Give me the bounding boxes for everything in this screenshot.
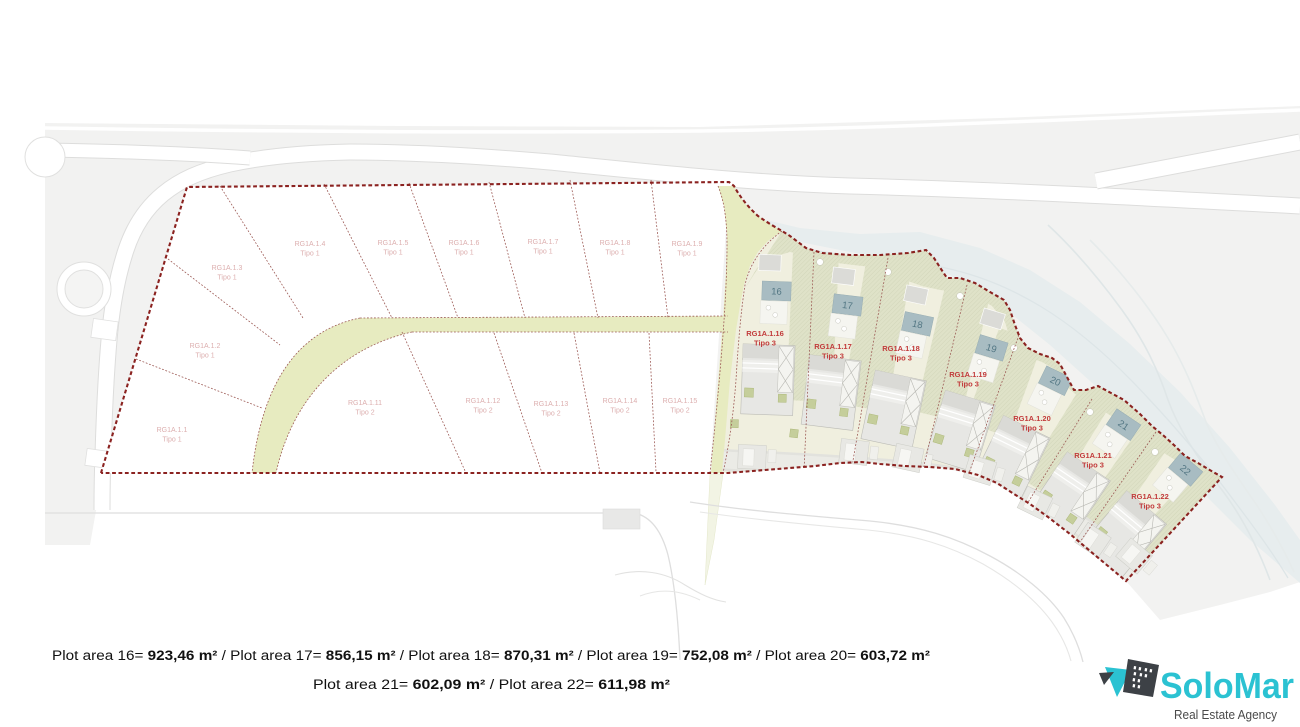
- svg-text:Tipo 2: Tipo 2: [610, 408, 629, 415]
- svg-text:Tipo 3: Tipo 3: [1021, 424, 1043, 433]
- svg-text:RG1A.1.9: RG1A.1.9: [672, 241, 703, 248]
- svg-text:RG1A.1.13: RG1A.1.13: [534, 401, 569, 408]
- svg-text:Tipo 1: Tipo 1: [533, 249, 552, 256]
- svg-text:RG1A.1.3: RG1A.1.3: [212, 265, 243, 272]
- svg-text:Tipo 2: Tipo 2: [473, 408, 492, 415]
- svg-text:RG1A.1.20: RG1A.1.20: [1013, 414, 1051, 423]
- svg-text:Tipo 2: Tipo 2: [355, 410, 374, 417]
- svg-text:16: 16: [771, 286, 782, 297]
- svg-text:Tipo 3: Tipo 3: [890, 354, 912, 363]
- svg-text:RG1A.1.11: RG1A.1.11: [348, 400, 382, 407]
- svg-text:Tipo 2: Tipo 2: [670, 408, 689, 415]
- svg-text:RG1A.1.21: RG1A.1.21: [1074, 451, 1112, 460]
- svg-text:Tipo 1: Tipo 1: [300, 251, 319, 258]
- svg-text:RG1A.1.2: RG1A.1.2: [190, 343, 221, 350]
- svg-text:Tipo 2: Tipo 2: [541, 411, 560, 418]
- svg-text:RG1A.1.5: RG1A.1.5: [378, 240, 409, 247]
- svg-text:Tipo 1: Tipo 1: [677, 251, 696, 258]
- svg-text:Tipo 1: Tipo 1: [162, 437, 181, 444]
- svg-text:Tipo 1: Tipo 1: [454, 250, 473, 257]
- svg-text:RG1A.1.17: RG1A.1.17: [814, 342, 852, 351]
- svg-text:RG1A.1.15: RG1A.1.15: [663, 398, 698, 405]
- svg-text:RG1A.1.8: RG1A.1.8: [600, 240, 631, 247]
- svg-text:RG1A.1.22: RG1A.1.22: [1131, 492, 1169, 501]
- svg-text:Tipo 1: Tipo 1: [217, 275, 236, 282]
- svg-text:RG1A.1.6: RG1A.1.6: [449, 240, 480, 247]
- svg-text:Real Estate Agency: Real Estate Agency: [1174, 707, 1277, 722]
- svg-text:Tipo 3: Tipo 3: [957, 380, 979, 389]
- svg-text:Plot area 16= 923,46 m² / Plo: Plot area 16= 923,46 m² / Plot area 17= …: [52, 648, 931, 663]
- svg-text:Tipo 3: Tipo 3: [754, 339, 776, 348]
- svg-text:Tipo 3: Tipo 3: [1082, 461, 1104, 470]
- svg-text:Tipo 1: Tipo 1: [605, 250, 624, 257]
- svg-text:Tipo 1: Tipo 1: [383, 250, 402, 257]
- svg-text:RG1A.1.14: RG1A.1.14: [603, 398, 638, 405]
- svg-text:RG1A.1.4: RG1A.1.4: [295, 241, 326, 248]
- svg-text:17: 17: [841, 300, 853, 312]
- svg-text:RG1A.1.12: RG1A.1.12: [466, 398, 501, 405]
- svg-text:RG1A.1.16: RG1A.1.16: [746, 329, 784, 338]
- svg-text:Tipo 1: Tipo 1: [195, 353, 214, 360]
- svg-text:SoloMar: SoloMar: [1160, 665, 1294, 706]
- svg-text:RG1A.1.1: RG1A.1.1: [157, 427, 188, 434]
- svg-text:Tipo 3: Tipo 3: [822, 352, 844, 361]
- svg-text:18: 18: [911, 318, 924, 331]
- svg-text:RG1A.1.19: RG1A.1.19: [949, 370, 987, 379]
- svg-text:Plot area 21= 602,09 m² /: Plot area 21= 602,09 m² / Plot area 22= …: [313, 677, 671, 692]
- svg-text:Tipo 3: Tipo 3: [1139, 502, 1161, 511]
- svg-text:RG1A.1.7: RG1A.1.7: [528, 239, 559, 246]
- svg-text:RG1A.1.18: RG1A.1.18: [882, 344, 920, 353]
